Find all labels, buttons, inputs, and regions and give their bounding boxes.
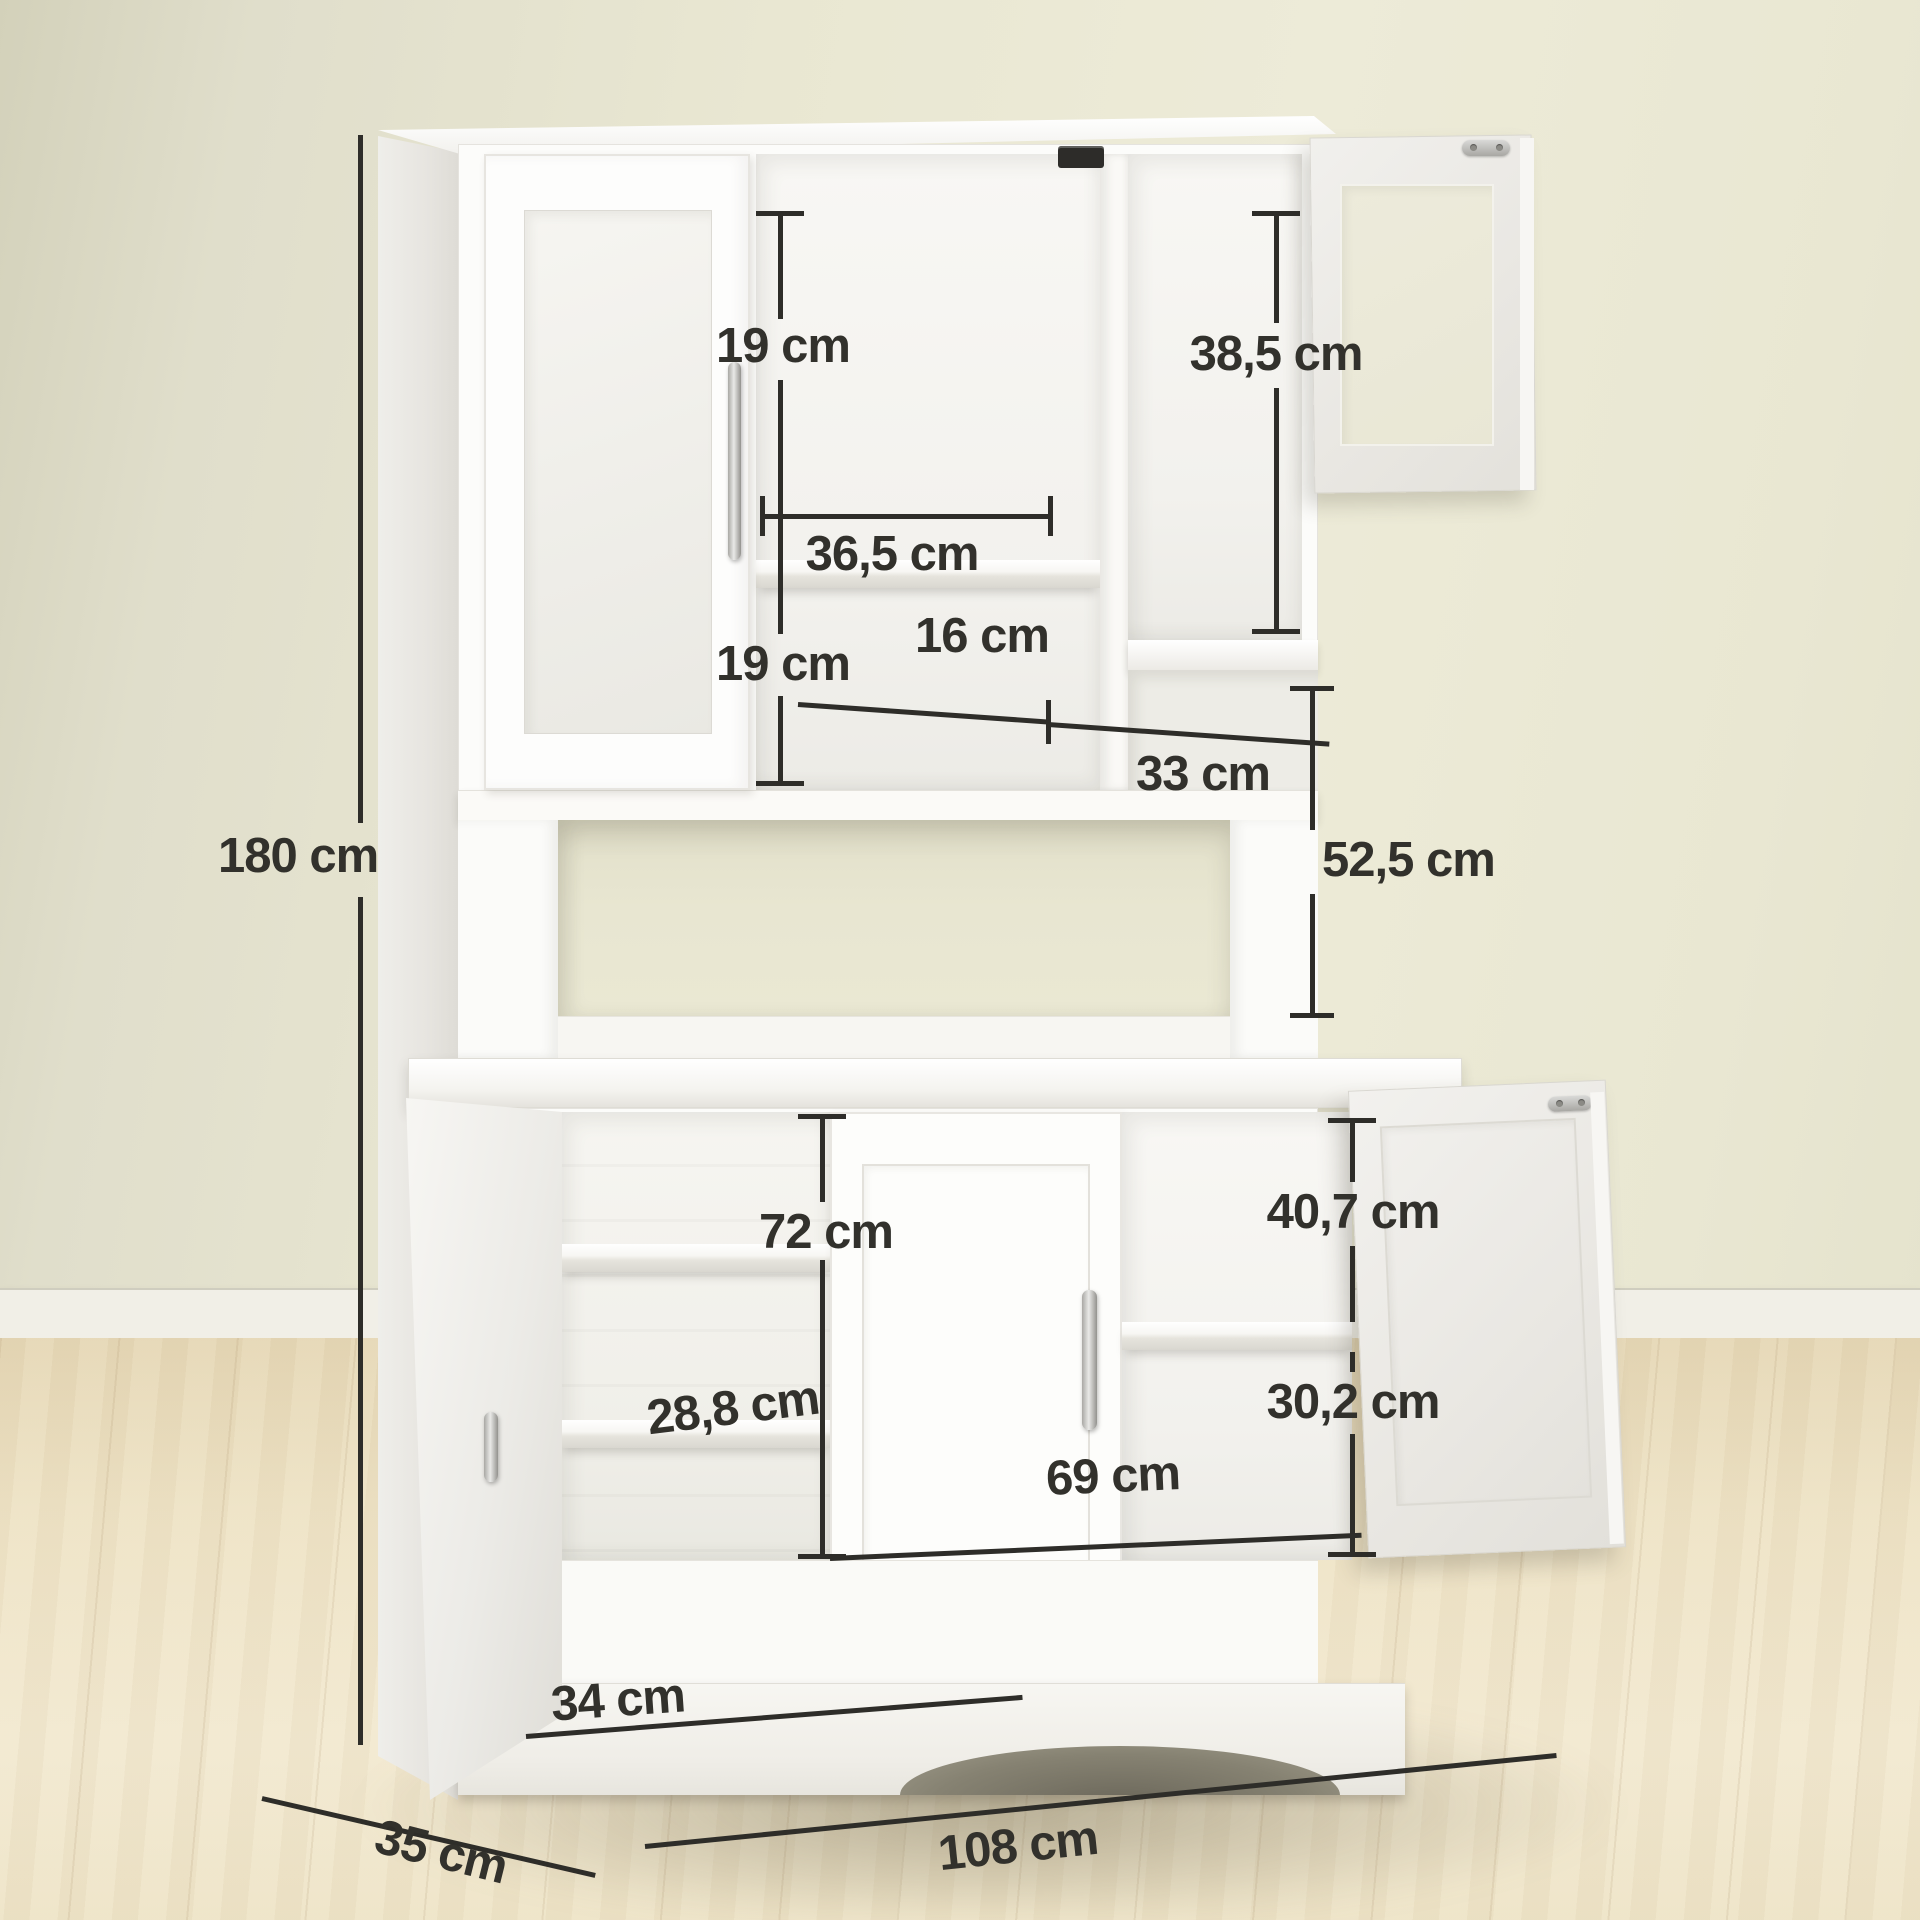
dim-tick	[1290, 1013, 1334, 1018]
dim-line-19b	[778, 696, 783, 784]
open-shelf-space	[558, 820, 1230, 1016]
dim-label-19a: 19 cm	[716, 322, 846, 371]
buffet-cabinet	[0, 0, 1920, 1920]
base-left-door-handle	[484, 1412, 498, 1482]
hutch-divider	[1100, 154, 1128, 790]
dim-line-180	[358, 897, 363, 1745]
hinge-screw	[1470, 144, 1477, 151]
dim-line-385	[1274, 211, 1279, 323]
base-left-compartment	[560, 1112, 830, 1560]
base-middle-door-panel	[862, 1164, 1090, 1584]
base-right-door-hinge-plate	[1548, 1095, 1593, 1112]
dim-label-180: 180 cm	[218, 832, 378, 881]
dim-tick	[1252, 629, 1300, 634]
hutch-right-board	[1128, 640, 1318, 670]
hutch-right-door-glass	[1340, 184, 1494, 446]
dim-line-72	[820, 1114, 825, 1202]
dim-label-33: 33 cm	[1118, 750, 1288, 799]
hutch-middle-compartment	[756, 154, 1100, 790]
dim-tick	[1328, 1552, 1376, 1557]
product-dimension-diagram: 180 cm 19 cm 36,5 cm 19 cm 38,5 cm 16 cm…	[0, 0, 1920, 1920]
dim-line-180	[358, 135, 363, 823]
hinge-screw	[1496, 144, 1503, 151]
dim-line-385	[1274, 388, 1279, 632]
dim-line-19a	[778, 380, 783, 518]
dim-tick	[756, 781, 804, 786]
base-bottom-rail	[458, 1560, 1318, 1683]
hutch-left-door-glass	[524, 210, 712, 734]
dim-line-302	[1350, 1352, 1355, 1372]
backsplash	[558, 1016, 1230, 1060]
countertop	[408, 1058, 1462, 1108]
hutch-top-hinge	[1058, 146, 1104, 168]
dim-line-525	[1310, 686, 1315, 830]
dim-line-365	[764, 514, 1052, 519]
hutch-left-door-handle	[728, 362, 741, 560]
dim-label-525: 52,5 cm	[1322, 836, 1552, 885]
base-right-shelf	[1122, 1322, 1352, 1350]
hinge-screw	[1578, 1099, 1585, 1106]
dim-label-385: 38,5 cm	[1156, 330, 1396, 379]
dim-label-365: 36,5 cm	[772, 530, 1012, 579]
dim-label-407: 40,7 cm	[1238, 1188, 1468, 1237]
dim-line-525	[1310, 894, 1315, 1016]
dim-label-16: 16 cm	[912, 612, 1052, 661]
base-right-door-panel	[1380, 1118, 1592, 1506]
dim-line-407	[1350, 1118, 1355, 1182]
left-upright	[458, 820, 558, 1058]
dim-label-72: 72 cm	[756, 1208, 896, 1257]
base-middle-door-handle	[1082, 1290, 1097, 1430]
dim-tick	[1048, 496, 1053, 536]
dim-label-302: 30,2 cm	[1238, 1378, 1468, 1427]
dim-label-69: 69 cm	[1027, 1448, 1199, 1504]
hutch-right-door-edge	[1520, 138, 1534, 490]
dim-label-19b: 19 cm	[716, 640, 846, 689]
dim-line-19a	[778, 211, 783, 319]
hinge-screw	[1556, 1100, 1563, 1107]
dim-line-407	[1350, 1246, 1355, 1322]
right-upright	[1230, 820, 1318, 1058]
